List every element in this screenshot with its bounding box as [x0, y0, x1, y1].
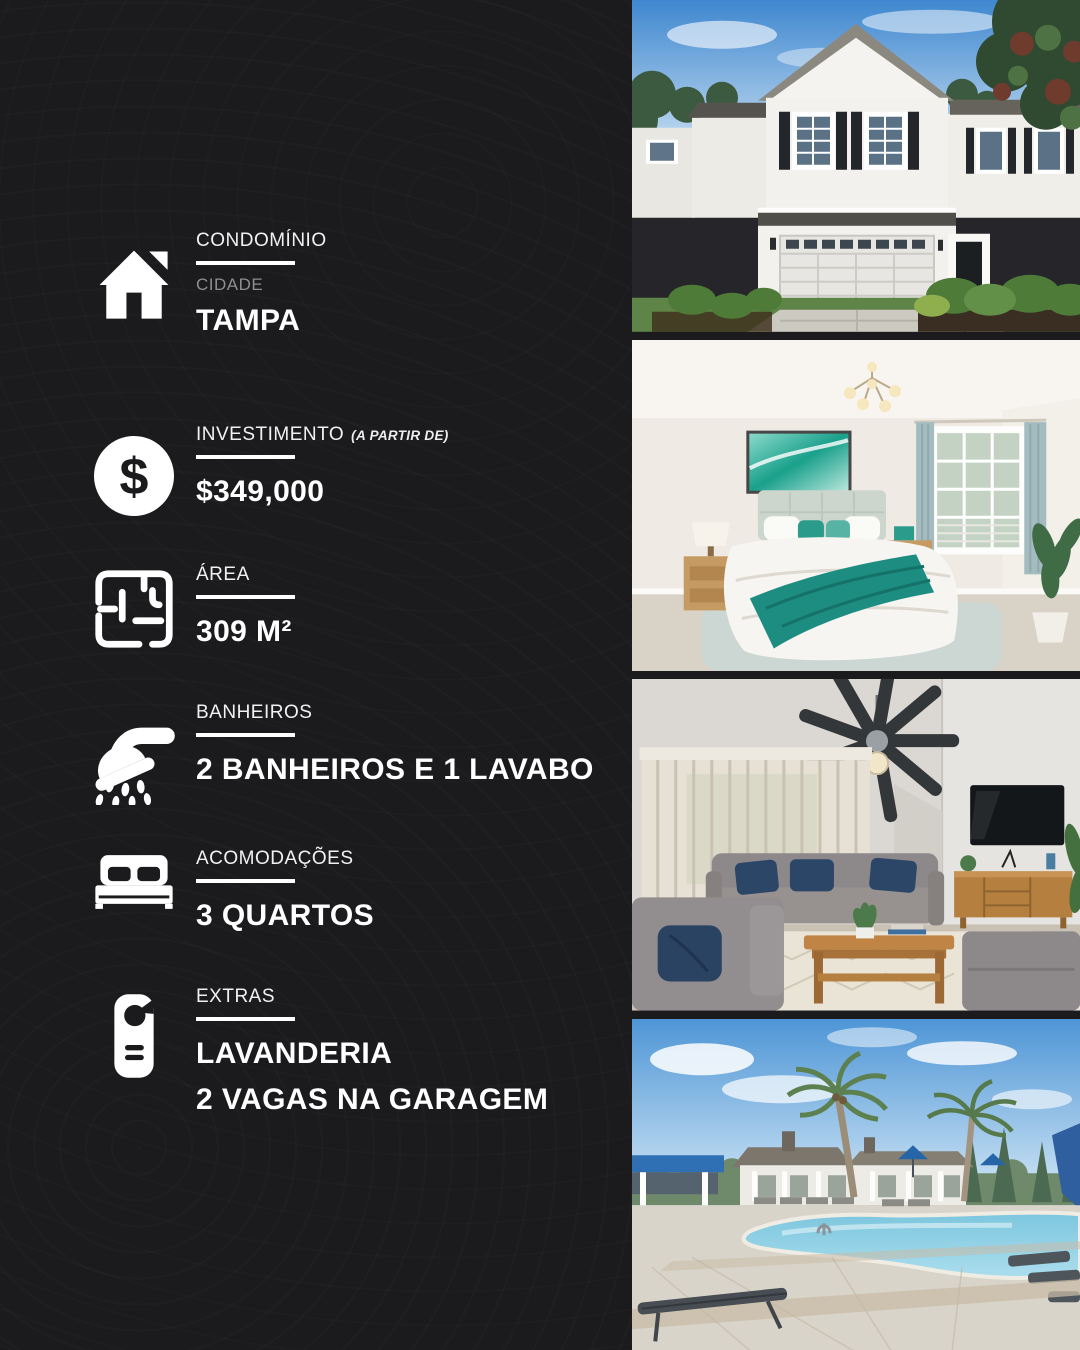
section-acomodacoes: ACOMODAÇÕES 3 QUARTOS: [84, 848, 632, 939]
section-label: EXTRAS: [196, 986, 275, 1008]
photo-column: [632, 0, 1080, 1350]
house-exterior-photo: [632, 0, 1080, 332]
section-area: ÁREA 309 M²: [84, 564, 632, 655]
dollar-sign-icon: $: [84, 436, 184, 516]
section-label: ACOMODAÇÕES: [196, 848, 354, 870]
section-extras: EXTRAS LAVANDERIA 2 VAGAS NA GARAGEM: [84, 986, 632, 1122]
section-label-note: (A PARTIR DE): [351, 428, 448, 443]
label-underline: [196, 455, 295, 459]
shower-icon: [84, 705, 184, 805]
section-value: 2 BANHEIROS E 1 LAVABO: [196, 747, 594, 793]
svg-text:$: $: [120, 448, 149, 506]
section-investimento: $ INVESTIMENTO (A PARTIR DE) $349,000: [84, 424, 632, 516]
section-value: TAMPA: [196, 298, 327, 344]
real-estate-listing-poster: CONDOMÍNIO CIDADE TAMPA $ INVESTIMENTO (…: [0, 0, 1080, 1350]
section-value-line: LAVANDERIA: [196, 1031, 548, 1077]
bedroom-photo: [632, 340, 1080, 672]
section-banheiros: BANHEIROS 2 BANHEIROS E 1 LAVABO: [84, 702, 632, 805]
section-value: 309 M²: [196, 609, 295, 655]
house-icon: [84, 236, 184, 324]
label-underline: [196, 595, 295, 599]
label-underline: [196, 261, 295, 265]
floor-plan-icon: [84, 567, 184, 651]
section-condominio: CONDOMÍNIO CIDADE TAMPA: [84, 230, 632, 344]
bed-icon: [84, 855, 184, 909]
living-room-photo: [632, 679, 1080, 1011]
label-underline: [196, 733, 295, 737]
section-label: CONDOMÍNIO: [196, 230, 327, 252]
door-hanger-icon: [84, 991, 184, 1081]
section-value: $349,000: [196, 469, 449, 515]
section-label: INVESTIMENTO: [196, 424, 344, 446]
section-sublabel: CIDADE: [196, 275, 327, 295]
label-underline: [196, 1017, 295, 1021]
section-value: 3 QUARTOS: [196, 893, 374, 939]
section-value-line: 2 VAGAS NA GARAGEM: [196, 1077, 548, 1123]
section-label: ÁREA: [196, 564, 250, 586]
section-label: BANHEIROS: [196, 702, 312, 724]
label-underline: [196, 879, 295, 883]
community-pool-photo: [632, 1019, 1080, 1350]
